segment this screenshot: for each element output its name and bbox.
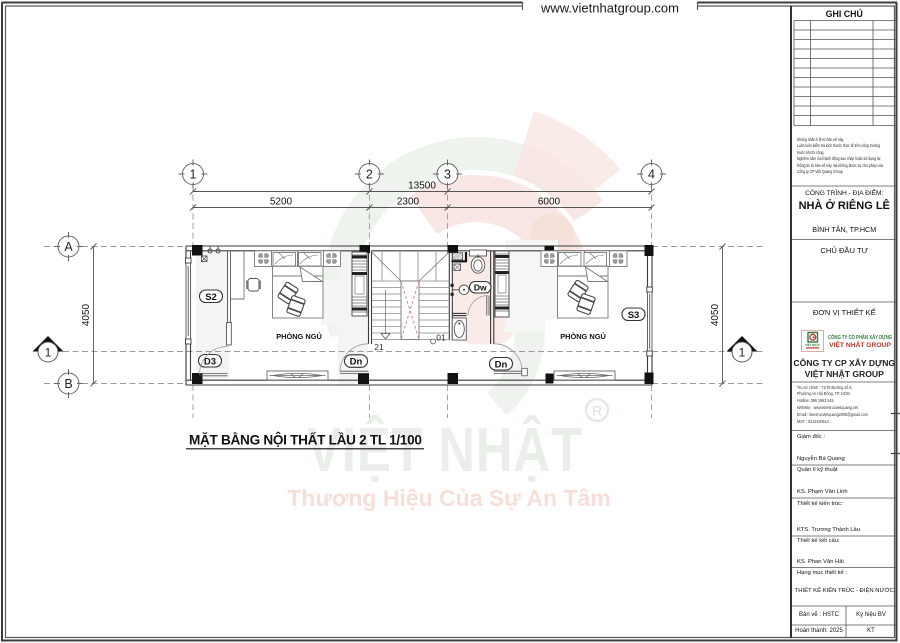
svg-text:VIỆT NHẬT: VIỆT NHẬT <box>805 342 820 347</box>
